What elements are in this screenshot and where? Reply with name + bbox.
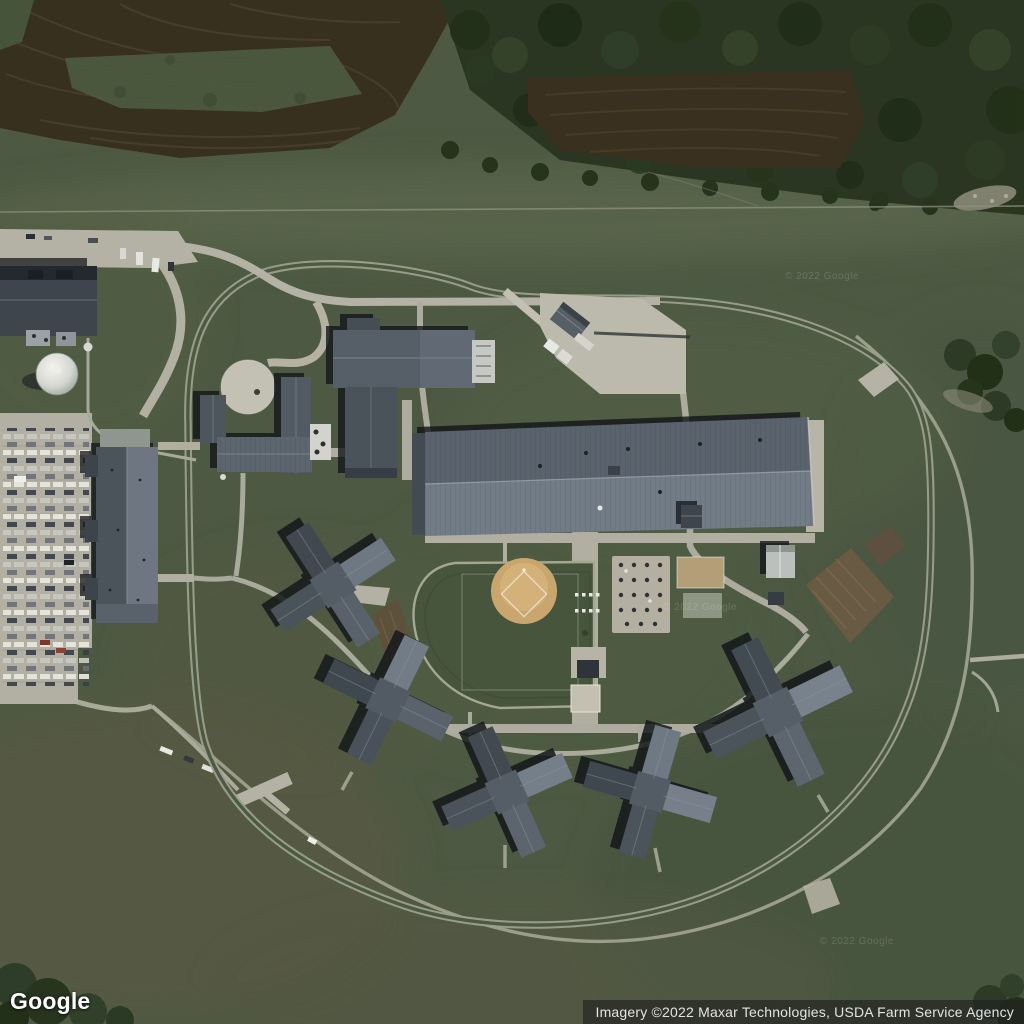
svg-text:© 2022 Google: © 2022 Google	[663, 602, 737, 613]
chiller-pad	[310, 424, 331, 460]
svg-text:© 2022 Google: © 2022 Google	[785, 271, 859, 282]
google-logo[interactable]: Google	[10, 988, 90, 1015]
car	[88, 238, 98, 243]
small-shed	[768, 592, 784, 605]
car	[44, 236, 52, 240]
car	[26, 234, 35, 239]
truck	[136, 252, 143, 265]
visitor-parking-lot	[0, 413, 92, 704]
red-car	[56, 648, 66, 653]
turnaround-pad	[221, 360, 275, 414]
satellite-imagery: © 2022 Google © 2022 Google © 2022 Googl…	[0, 0, 1024, 1024]
small-gable-building	[676, 501, 702, 528]
map-canvas[interactable]: © 2022 Google © 2022 Google © 2022 Googl…	[0, 0, 1024, 1024]
handball-court	[571, 685, 600, 712]
car	[168, 262, 174, 271]
main-central-building	[412, 412, 814, 536]
yard-shed	[577, 660, 599, 678]
administration-building	[80, 429, 158, 623]
sport-court	[677, 557, 724, 588]
svg-text:© 2022 Google: © 2022 Google	[820, 936, 894, 947]
attribution-text: Imagery ©2022 Maxar Technologies, USDA F…	[583, 1000, 1024, 1024]
black-car	[64, 560, 74, 565]
truck	[120, 248, 126, 259]
red-car	[40, 640, 50, 645]
white-van	[14, 476, 26, 482]
truck	[151, 258, 159, 273]
